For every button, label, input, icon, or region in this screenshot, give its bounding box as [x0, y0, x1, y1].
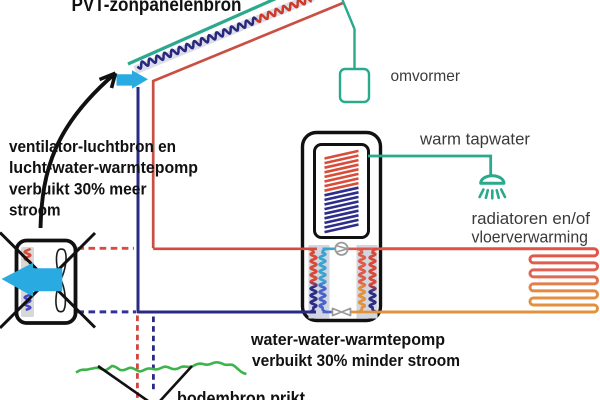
svg-text:PVT-zonpanelenbron: PVT-zonpanelenbron	[72, 0, 242, 16]
svg-text:stroom: stroom	[9, 201, 61, 220]
svg-text:warm tapwater: warm tapwater	[419, 130, 530, 149]
svg-text:ventilator-luchtbron en: ventilator-luchtbron en	[9, 137, 176, 156]
svg-text:water-water-warmtepomp: water-water-warmtepomp	[250, 330, 445, 349]
svg-text:verbuikt 30% minder stroom: verbuikt 30% minder stroom	[252, 351, 460, 370]
svg-text:lucht-water-warmtepomp: lucht-water-warmtepomp	[9, 158, 198, 177]
svg-text:bodembron prikt: bodembron prikt	[177, 389, 305, 400]
svg-text:verbuikt 30% meer: verbuikt 30% meer	[9, 179, 147, 198]
svg-text:omvormer: omvormer	[391, 68, 461, 85]
svg-text:radiatoren en/of: radiatoren en/of	[472, 209, 591, 228]
svg-text:vloerverwarming: vloerverwarming	[472, 228, 589, 247]
